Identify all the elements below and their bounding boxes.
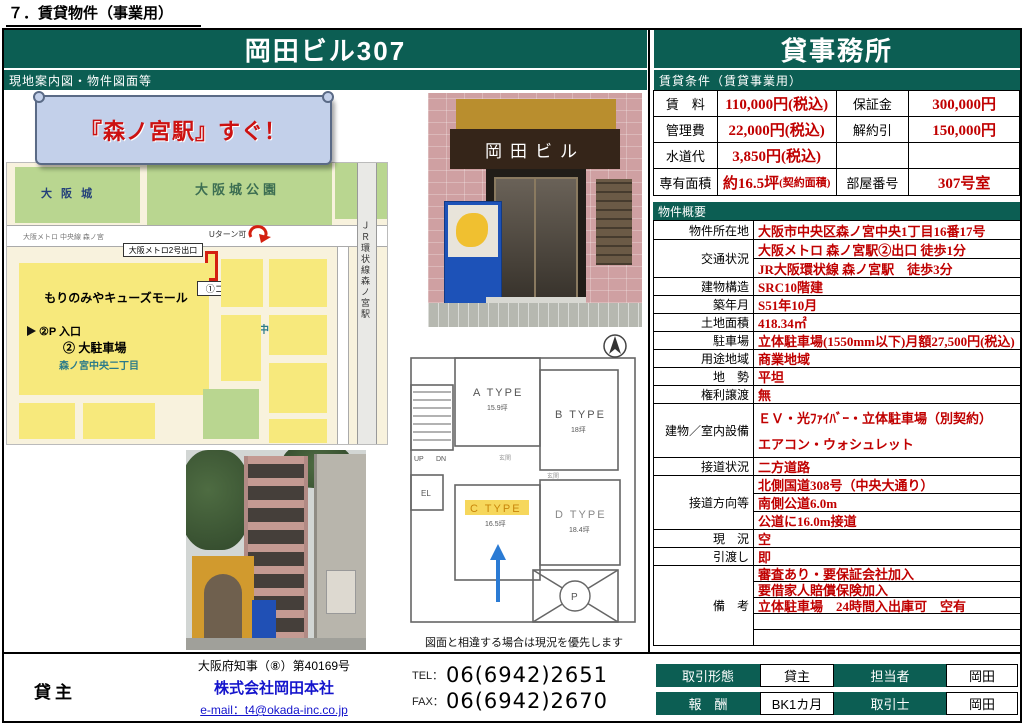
page-title: ７．賃貸物件（事業用） bbox=[6, 2, 201, 27]
ov-value: 立体駐車場 24時間入出庫可 空有 bbox=[754, 597, 1020, 613]
ov-value: 商業地域 bbox=[754, 350, 1020, 367]
table-row: 建物構造 SRC10階建 bbox=[654, 278, 1020, 296]
ov-label: 交通状況 bbox=[654, 240, 754, 277]
building-title: 岡田ビル307 bbox=[245, 31, 406, 68]
ov-value bbox=[754, 613, 1020, 629]
map-label-mall: もりのみやキューズモール bbox=[27, 289, 205, 306]
rental-conditions-table: 賃 料 110,000円(税込) 保証金 300,000円 管理費 22,000… bbox=[653, 90, 1020, 196]
cond-label: 保証金 bbox=[837, 91, 910, 116]
door-frame bbox=[534, 177, 536, 305]
map-exit-callout-text: 大阪メトロ2号出口 bbox=[129, 245, 197, 256]
map-label-park: 大阪城公園 bbox=[195, 179, 280, 198]
table-row: 権利譲渡 無 bbox=[654, 386, 1020, 404]
room-d-label: D TYPE bbox=[555, 509, 607, 521]
map-block bbox=[203, 389, 259, 439]
ov-label: 用途地域 bbox=[654, 350, 754, 367]
map-label-chome2: 森ノ宮中央二丁目 bbox=[59, 357, 139, 372]
licensed-agent-value: 岡田 bbox=[946, 692, 1018, 715]
cond-label: 部屋番号 bbox=[837, 169, 910, 195]
table-row: 築年月 S51年10月 bbox=[654, 296, 1020, 314]
cond-label: 専有面積 bbox=[654, 169, 718, 195]
room-c-label: C TYPE bbox=[470, 503, 522, 515]
ov-label: 権利譲渡 bbox=[654, 386, 754, 403]
deal-type-label: 取引形態 bbox=[656, 664, 760, 687]
cond-value: 307号室 bbox=[909, 169, 1019, 195]
tel-number: 06(6942)2651 bbox=[446, 663, 608, 687]
licensed-agent-label: 取引士 bbox=[834, 692, 946, 715]
cond-value: 300,000円 bbox=[909, 91, 1019, 116]
table-row: 現 況 空 bbox=[654, 530, 1020, 548]
map-road bbox=[337, 247, 349, 445]
tiled-walkway bbox=[428, 303, 642, 327]
stairs-up-label: UP bbox=[414, 456, 424, 463]
cond-value: 約16.5坪(契約面積) bbox=[718, 169, 837, 195]
vending-machine bbox=[252, 600, 276, 640]
cond-value: 22,000円(税込) bbox=[718, 117, 837, 142]
table-row: 引渡し 即 bbox=[654, 548, 1020, 566]
ov-value: 審査あり・要保証会社加入 bbox=[754, 566, 1020, 581]
ov-value: 立体駐車場(1550mm以下)月額27,500円(税込) bbox=[754, 332, 1020, 349]
table-row: 管理費 22,000円(税込) 解約引 150,000円 bbox=[654, 117, 1019, 143]
table-row: 備 考 審査あり・要保証会社加入 要借家人賠償保険加入 立体駐車場 24時間入出… bbox=[654, 566, 1020, 646]
cond-value-suffix: (契約面積) bbox=[779, 174, 830, 190]
ov-value: 要借家人賠償保険加入 bbox=[754, 581, 1020, 597]
ov-value: 大阪メトロ 森ノ宮駅②出口 徒歩1分 bbox=[754, 240, 1020, 258]
elevator-label: EL bbox=[421, 489, 431, 498]
table-row: 土地面積 418.34㎡ bbox=[654, 314, 1020, 332]
ov-label: 建物／室内設備 bbox=[654, 404, 754, 457]
genkan-label: 玄関 bbox=[499, 454, 511, 462]
table-row: 地 勢 平坦 bbox=[654, 368, 1020, 386]
entrance-photo: 岡田ビル bbox=[428, 93, 642, 327]
building-title-bar: 岡田ビル307 bbox=[4, 30, 647, 68]
u-turn-arrow-icon bbox=[247, 221, 273, 243]
ov-value: 空 bbox=[754, 530, 1020, 547]
map-block bbox=[269, 259, 327, 307]
ov-value: 北側国道308号（中央大通り） bbox=[754, 476, 1020, 493]
building-fascia bbox=[456, 99, 616, 129]
email-link[interactable]: e-mail：t4@okada-inc.co.jp bbox=[134, 701, 414, 718]
panel-divider bbox=[648, 30, 650, 652]
map-label-jr-station: ＪＲ環状線森ノ宮駅 bbox=[359, 221, 372, 320]
cond-label: 管理費 bbox=[654, 117, 718, 142]
ov-label: 接道方向等 bbox=[654, 476, 754, 529]
deal-info-table: 取引形態 貸主 担当者 岡田 報 酬 BK1カ月 取引士 岡田 bbox=[656, 664, 1018, 715]
fax-row: FAX： 06(6942)2670 bbox=[412, 688, 608, 714]
arch-opening bbox=[204, 574, 242, 640]
banner-curl-icon bbox=[33, 91, 45, 103]
fee-value: BK1カ月 bbox=[760, 692, 834, 715]
license-number: 大阪府知事（⑧）第40169号 bbox=[134, 657, 414, 674]
footer-band: 貸主 大阪府知事（⑧）第40169号 株式会社岡田本社 e-mail：t4@ok… bbox=[4, 652, 1020, 721]
lessor-label: 貸主 bbox=[34, 678, 76, 703]
ov-value: 公道に16.0m接道 bbox=[754, 511, 1020, 529]
tel-row: TEL： 06(6942)2651 bbox=[412, 662, 608, 688]
ov-value: ＥＶ・光ﾌｧｲﾊﾞｰ・立体駐車場（別契約） bbox=[754, 407, 1020, 427]
banner-curl-icon bbox=[322, 91, 334, 103]
map-block bbox=[269, 419, 327, 443]
table-row: 専有面積 約16.5坪(契約面積) 部屋番号 307号室 bbox=[654, 169, 1019, 195]
table-row: 接道状況 二方道路 bbox=[654, 458, 1020, 476]
adjacent-building-door bbox=[326, 570, 356, 614]
plan-caption: 図面と相違する場合は現況を優先します bbox=[400, 634, 648, 650]
ov-value: JR大阪環状線 森ノ宮駅 徒歩3分 bbox=[754, 258, 1020, 277]
cond-label: 解約引 bbox=[837, 117, 910, 142]
fee-label: 報 酬 bbox=[656, 692, 760, 715]
map-block bbox=[221, 315, 261, 381]
property-overview-table: 物件所在地 大阪市中央区森ノ宮中央1丁目16番17号 交通状況 大阪メトロ 森ノ… bbox=[653, 220, 1020, 646]
cond-label bbox=[837, 143, 910, 168]
ov-value: 無 bbox=[754, 386, 1020, 403]
map-label-castle: 大 阪 城 bbox=[41, 185, 95, 201]
wall-lattice bbox=[596, 179, 632, 265]
table-row: 賃 料 110,000円(税込) 保証金 300,000円 bbox=[654, 91, 1019, 117]
map-block bbox=[19, 403, 75, 439]
overview-section-bar: 物件概要 bbox=[653, 202, 1020, 220]
ov-label: 地 勢 bbox=[654, 368, 754, 385]
ov-value: 二方道路 bbox=[754, 458, 1020, 475]
room-a-size: 15.9坪 bbox=[487, 404, 508, 412]
ov-label: 備 考 bbox=[654, 566, 754, 645]
genkan-label: 玄関 bbox=[547, 472, 559, 480]
cond-value-text: 約16.5坪 bbox=[723, 172, 779, 193]
stairs-down-label: DN bbox=[436, 456, 446, 463]
ov-label: 接道状況 bbox=[654, 458, 754, 475]
floor-plan: A TYPE 15.9坪 B TYPE 18坪 C TYPE 16.5坪 D T… bbox=[403, 330, 648, 630]
arrow-icon bbox=[27, 326, 36, 336]
cond-value: 150,000円 bbox=[909, 117, 1019, 142]
conditions-section-bar: 賃貸条件（賃貸事業用） bbox=[654, 70, 1020, 90]
ov-value: 平坦 bbox=[754, 368, 1020, 385]
tel-fax-block: TEL： 06(6942)2651 FAX： 06(6942)2670 bbox=[412, 662, 608, 714]
map-section-title: 現地案内図・物件図面等 bbox=[9, 72, 152, 89]
tel-label: TEL： bbox=[412, 667, 446, 683]
ov-value: 大阪市中央区森ノ宮中央1丁目16番17号 bbox=[754, 221, 1020, 239]
ov-value: エアコン・ウォシュレット bbox=[754, 434, 1020, 454]
agent-value: 岡田 bbox=[946, 664, 1018, 687]
street bbox=[186, 638, 366, 650]
ov-label: 築年月 bbox=[654, 296, 754, 313]
table-row: 駐車場 立体駐車場(1550mm以下)月額27,500円(税込) bbox=[654, 332, 1020, 350]
fax-label: FAX： bbox=[412, 693, 446, 709]
map-block bbox=[221, 259, 263, 307]
map-block bbox=[269, 363, 327, 413]
ov-value: SRC10階建 bbox=[754, 278, 1020, 295]
cond-value bbox=[909, 143, 1019, 168]
ov-label: 物件所在地 bbox=[654, 221, 754, 239]
vending-machine-art bbox=[456, 213, 488, 247]
ov-value: 即 bbox=[754, 548, 1020, 565]
building-sign: 岡田ビル bbox=[450, 129, 620, 169]
map-label-u-turn: Uターン可 bbox=[209, 229, 246, 240]
room-b-label: B TYPE bbox=[555, 409, 606, 421]
exterior-photo bbox=[186, 450, 366, 650]
station-banner: 『森ノ宮駅』すぐ！ bbox=[35, 95, 332, 165]
fax-number: 06(6942)2670 bbox=[446, 689, 608, 713]
cond-label: 水道代 bbox=[654, 143, 718, 168]
ov-value: S51年10月 bbox=[754, 296, 1020, 313]
ov-label: 現 況 bbox=[654, 530, 754, 547]
overview-section-title: 物件概要 bbox=[658, 203, 706, 220]
map-block bbox=[83, 403, 155, 439]
room-c-size: 16.5坪 bbox=[485, 520, 506, 528]
ov-value bbox=[754, 629, 1020, 645]
parking-label: P bbox=[571, 592, 578, 603]
category-title: 貸事務所 bbox=[781, 31, 893, 68]
ov-label: 土地面積 bbox=[654, 314, 754, 331]
map-label-p-entrance: ②P 入口 bbox=[39, 323, 81, 339]
table-row: 交通状況 大阪メトロ 森ノ宮駅②出口 徒歩1分 JR大阪環状線 森ノ宮駅 徒歩3… bbox=[654, 240, 1020, 278]
map-label-big-parking: ② 大駐車場 bbox=[63, 339, 126, 356]
building-sign-text: 岡田ビル bbox=[485, 137, 585, 162]
tree bbox=[186, 450, 250, 550]
area-map: 大 阪 城 大阪城公園 大阪メトロ 中央線 森ノ宮 Uターン可 ＪＲ環状線森ノ宮… bbox=[6, 162, 388, 445]
ov-value: 南側公道6.0m bbox=[754, 493, 1020, 511]
entrance-door bbox=[494, 177, 578, 305]
cond-label: 賃 料 bbox=[654, 91, 718, 116]
cond-value: 110,000円(税込) bbox=[718, 91, 837, 116]
room-d-size: 18.4坪 bbox=[569, 526, 590, 534]
table-row: 建物／室内設備 ＥＶ・光ﾌｧｲﾊﾞｰ・立体駐車場（別契約） エアコン・ウォシュレ… bbox=[654, 404, 1020, 458]
ov-label: 駐車場 bbox=[654, 332, 754, 349]
map-label-metro-line: 大阪メトロ 中央線 森ノ宮 bbox=[23, 232, 104, 242]
agent-label: 担当者 bbox=[834, 664, 946, 687]
ov-label: 建物構造 bbox=[654, 278, 754, 295]
room-a-label: A TYPE bbox=[473, 387, 523, 399]
map-exit-callout: 大阪メトロ2号出口 bbox=[123, 243, 203, 257]
unit-arrow-head-icon bbox=[490, 544, 506, 560]
cond-value: 3,850円(税込) bbox=[718, 143, 837, 168]
ov-label: 引渡し bbox=[654, 548, 754, 565]
property-sheet: 岡田ビル307 貸事務所 現地案内図・物件図面等 賃貸条件（賃貸事業用） 『森ノ… bbox=[2, 28, 1022, 723]
conditions-section-title: 賃貸条件（賃貸事業用） bbox=[659, 72, 802, 89]
deal-type-value: 貸主 bbox=[760, 664, 834, 687]
company-name: 株式会社岡田本社 bbox=[134, 677, 414, 698]
map-block bbox=[269, 315, 327, 355]
cond-value-text: 3,850円(税込) bbox=[732, 145, 821, 166]
table-row: 用途地域 商業地域 bbox=[654, 350, 1020, 368]
table-row: 接道方向等 北側国道308号（中央大通り） 南側公道6.0m 公道に16.0m接… bbox=[654, 476, 1020, 530]
table-row: 水道代 3,850円(税込) bbox=[654, 143, 1019, 169]
category-title-bar: 貸事務所 bbox=[654, 30, 1020, 68]
room-b-size: 18坪 bbox=[571, 426, 586, 434]
map-section-bar: 現地案内図・物件図面等 bbox=[4, 70, 647, 90]
banner-text: 『森ノ宮駅』すぐ！ bbox=[80, 114, 287, 146]
cond-value-text: 110,000円(税込) bbox=[725, 93, 828, 114]
table-row: 物件所在地 大阪市中央区森ノ宮中央1丁目16番17号 bbox=[654, 221, 1020, 240]
cond-value-text: 22,000円(税込) bbox=[729, 119, 825, 140]
ov-value: 418.34㎡ bbox=[754, 314, 1020, 331]
entrance-step bbox=[486, 297, 586, 303]
